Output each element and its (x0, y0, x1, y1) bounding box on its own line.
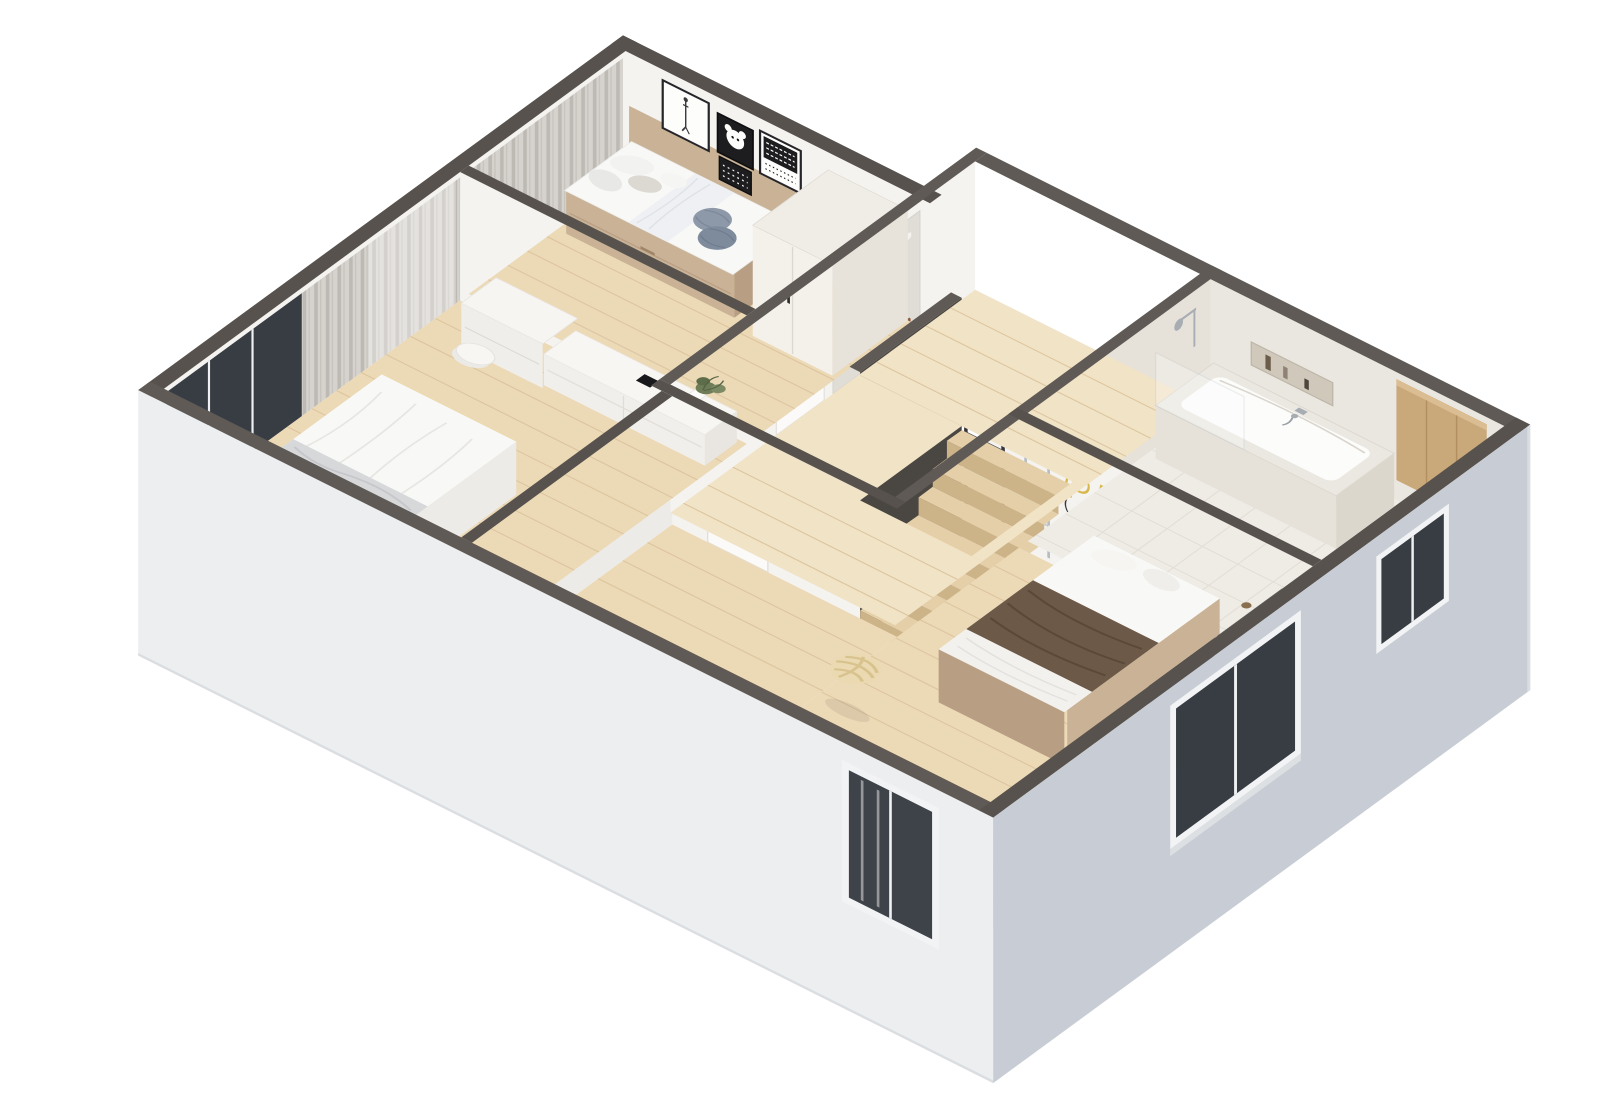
bottle-1 (1265, 354, 1270, 371)
floor-plan-render: PLAY (0, 0, 1600, 1093)
bottle-2 (1283, 366, 1287, 380)
floor-plan-stage: PLAY (0, 0, 1600, 1093)
